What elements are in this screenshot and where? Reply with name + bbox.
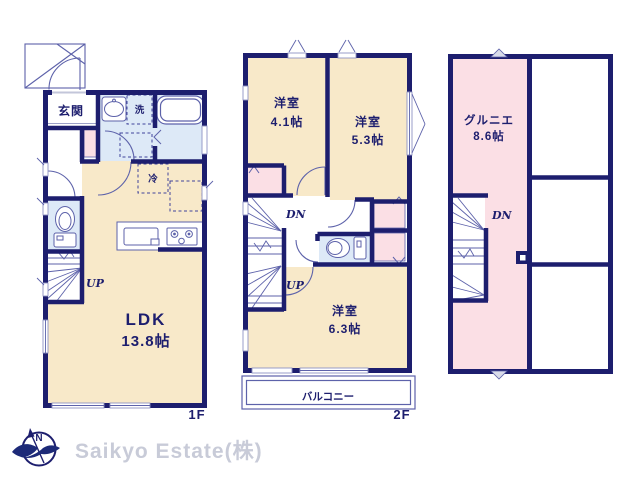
grenier-name: グルニエ: [464, 113, 514, 127]
toilet-fixture-1f: [54, 207, 76, 248]
floor2-plan: 洋室 4.1帖 洋室 5.3帖 洋室 6.3帖 DN UP バルコニー 2F: [242, 40, 425, 422]
bedroom-5-3-size: 5.3帖: [352, 132, 385, 147]
stairwell-attic: [452, 197, 485, 300]
stairs-down-label-attic: DN: [491, 209, 513, 222]
closet-4-1: [246, 167, 283, 194]
washbasin: [102, 97, 126, 121]
attic-pillar: [516, 251, 529, 264]
bedroom-6-3-west: [248, 311, 286, 369]
bedroom-5-3-name: 洋室: [355, 114, 381, 129]
closet-5-3: [374, 203, 405, 228]
attic-room-1: [532, 57, 610, 176]
stairs-up-label-2f: UP: [286, 279, 305, 292]
attic-room-2: [532, 180, 610, 263]
compass-icon: N: [12, 428, 60, 466]
attic-room-3: [532, 267, 610, 371]
bedroom-6-3-size: 6.3帖: [329, 321, 362, 336]
kitchen-stove: [167, 228, 197, 245]
fridge-label: 冷: [148, 173, 158, 185]
kitchen-faucet: [151, 239, 159, 245]
laundry-label: 洗: [135, 104, 145, 116]
ldk-size-label: 13.8帖: [121, 332, 170, 350]
stairs-down-label-2f: DN: [285, 208, 307, 221]
ldk-room-west: [46, 303, 86, 406]
floor2-label: 2F: [393, 407, 410, 422]
footer: N Saikyo Estate(株): [12, 428, 263, 466]
hallway: [46, 129, 82, 199]
closet-6-3: [374, 233, 405, 261]
company-name: Saikyo Estate(株): [75, 439, 263, 463]
bedroom-6-3: [286, 267, 407, 369]
bedroom-4-1-size: 4.1帖: [271, 114, 304, 129]
entrance-porch: [25, 44, 85, 88]
entrance-closet: [84, 129, 97, 157]
floor-plan-page: 玄関 洗 冷 LDK 13.8帖 UP 1F: [0, 0, 640, 480]
entrance-label: 玄関: [58, 103, 84, 118]
stairs-up-label-1f: UP: [86, 277, 105, 290]
bedroom-6-3-name: 洋室: [332, 303, 358, 318]
bedroom-5-3: [330, 58, 407, 200]
compass-north-label: N: [35, 433, 42, 444]
balcony-label: バルコニー: [302, 391, 354, 403]
grenier-size: 8.6帖: [473, 129, 505, 143]
kitchen-counter: [117, 222, 205, 250]
bedroom-5-3-door-arc: [328, 200, 355, 227]
floor-plan-drawing: 玄関 洗 冷 LDK 13.8帖 UP 1F: [0, 0, 640, 480]
floor1-plan: 玄関 洗 冷 LDK 13.8帖 UP 1F: [25, 44, 213, 422]
floor1-label: 1F: [188, 407, 205, 422]
bedroom-4-1-name: 洋室: [274, 95, 300, 110]
ldk-name-label: LDK: [126, 310, 167, 329]
attic-plan: グルニエ 8.6帖 DN: [448, 49, 613, 379]
bathtub: [157, 96, 204, 124]
